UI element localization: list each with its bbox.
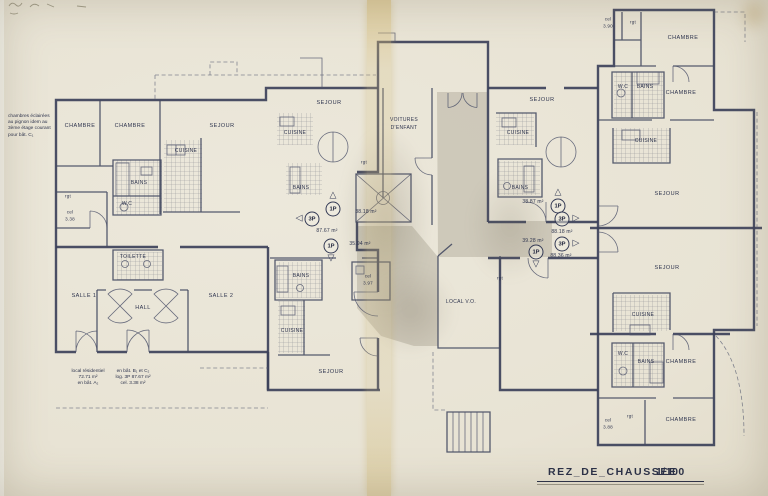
room-label-chambre: CHAMBRE [666,359,697,365]
room-label-chambre: CHAMBRE [666,417,697,423]
unit-type-badge: 3P [555,237,570,252]
margin-note-line: pour bât. C₁ [8,133,68,139]
unit-arrow-down-icon: ▽ [328,255,335,264]
room-label-cuisine: CUISINE [507,130,529,136]
unit-arrow-right-icon: ▷ [573,215,580,224]
cel-value: 3.38 [65,217,75,222]
cel-value: 3.97 [363,281,373,286]
cel-value: 3.90 [603,24,613,29]
unit-type-badge: 1P [326,202,341,217]
residential-note: local résidentiel 72.71 m² en bât. A₂ [71,369,104,388]
room-label-sejour: SEJOUR [209,123,234,129]
unit-area-label: 38.18 m² [355,209,376,215]
room-label-bains: BAINS [637,84,654,90]
residential-note-line: en bât. A₂ [71,381,104,387]
unit-area-label: 35.94 m² [349,241,370,247]
room-label-voitures: D'ENFANT [391,125,418,131]
unit-type-badge: 3P [555,212,570,227]
room-label-cuisine: CUISINE [175,148,197,154]
room-label-wc: W.C [618,351,628,357]
unit-arrow-down-icon: ▽ [533,261,540,270]
room-label-chambre: CHAMBRE [668,35,699,41]
title-underline-shadow [537,484,704,485]
unit-arrow-up-icon: △ [330,192,337,201]
variant-note: en bât. B₁ et C₂ log. 3P 87.67 m² cel. 3… [115,369,150,388]
title-underline [537,481,704,482]
room-label-hall: HALL [135,305,151,311]
room-label-sejour: SEJOUR [529,97,554,103]
room-label-voitures: VOITURES [390,117,418,123]
room-label-bains: BAINS [638,359,655,365]
cel-value: 3.88 [603,425,613,430]
room-label-rgt: rgt [65,194,71,199]
unit-arrow-right-icon: ▷ [573,240,580,249]
unit-type-badge: 1P [324,239,339,254]
room-label-sejour: SEJOUR [316,100,341,106]
plan-scale: 1/100 [656,466,685,478]
room-label-cuisine: CUISINE [284,130,306,136]
room-label-rgt: rgt [630,20,636,25]
room-label-salle1: SALLE 1 [72,293,97,299]
variant-note-line: cel. 3.38 m² [115,381,150,387]
room-label-cuisine: CUISINE [281,328,303,334]
room-label-sejour: SEJOUR [654,265,679,271]
room-label-bains: BAINS [512,185,529,191]
room-label-cuisine: CUISINE [632,312,654,318]
room-label-rgt: rgt [497,276,503,281]
unit-type-badge: 1P [529,245,544,260]
room-label-rgt: rgt [361,160,367,165]
scanned-floor-plan-sheet: CHAMBRE CHAMBRE SEJOUR CUISINE BAINS W.C… [0,0,768,496]
unit-area-label: 87.67 m² [316,228,337,234]
room-label-chambre: CHAMBRE [666,90,697,96]
room-label-sejour: SEJOUR [654,191,679,197]
room-label-sejour: SEJOUR [318,369,343,375]
room-label-chambre: CHAMBRE [65,123,96,129]
unit-area-label: 38.87 m² [522,199,543,205]
room-label-bains: BAINS [131,180,148,186]
room-label-local-vo: LOCAL V.O. [446,299,476,305]
room-label-bains: BAINS [293,273,310,279]
unit-arrow-left-icon: ◁ [296,215,303,224]
unit-area-label: 39.28 m² [522,238,543,244]
cel-label: cel [605,17,611,22]
cel-label: cel [67,210,73,215]
room-label-cuisine: CUISINE [635,138,657,144]
floor-plan-linework [0,0,768,496]
cel-label: cel [365,274,371,279]
room-label-wc: W.C [122,201,132,207]
room-label-rgt: rgt [627,414,633,419]
unit-type-badge: 3P [305,212,320,227]
margin-note: chambres éclairées au pignon idem au 3èm… [8,114,68,139]
room-label-toilette: TOILETTE [120,254,146,260]
room-label-bains: BAINS [293,185,310,191]
sheet-edge [0,0,4,496]
unit-arrow-up-icon: △ [555,189,562,198]
room-label-chambre: CHAMBRE [115,123,146,129]
pencil-marks [9,3,86,14]
unit-area-label: 88.36 m² [550,253,571,259]
unit-area-label: 88.18 m² [551,229,572,235]
cel-label: cel [605,418,611,423]
room-label-wc: W.C [618,84,628,90]
room-label-salle2: SALLE 2 [209,293,234,299]
small-stair [447,412,490,452]
